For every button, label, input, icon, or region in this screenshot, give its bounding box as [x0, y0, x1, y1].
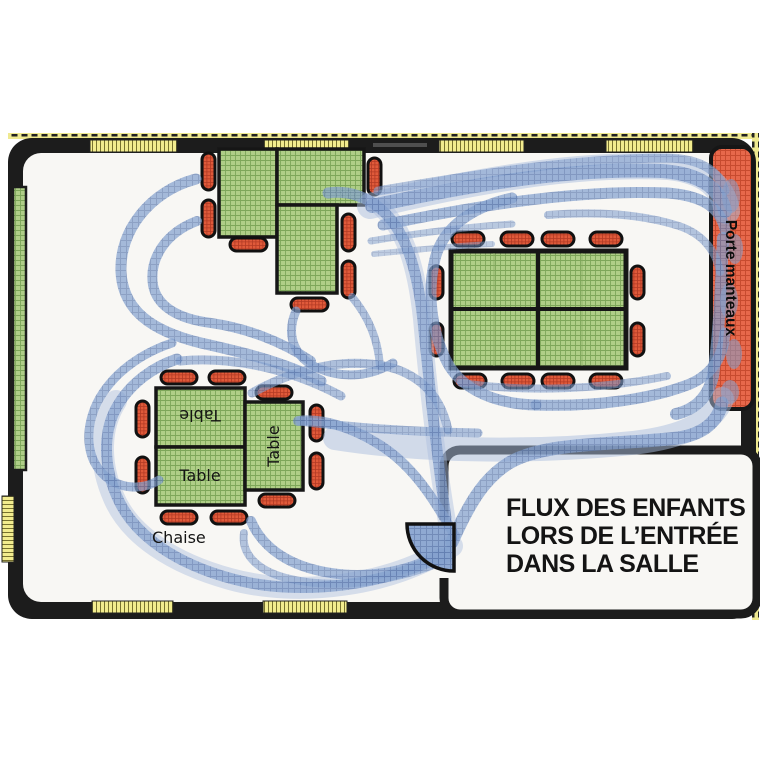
table-big-block: [451, 251, 626, 368]
window-bottom-2: [263, 601, 347, 613]
chair: [501, 232, 533, 246]
coat-rack-label: Porte manteaux: [722, 220, 739, 337]
chair: [202, 200, 215, 237]
flow-blob: [726, 339, 742, 369]
window-top-3: [439, 140, 524, 152]
chair: [342, 214, 355, 251]
floor-plan: Table Table Table Chaise Porte manteaux …: [0, 0, 760, 760]
window-bottom-1: [92, 601, 173, 613]
chair-label: Chaise: [152, 528, 206, 547]
window-top-4: [606, 140, 693, 152]
chair: [136, 401, 149, 437]
wall-marker-line: [373, 143, 427, 147]
title-line-2: LORS DE L’ENTRÉE: [506, 521, 738, 550]
chair: [161, 371, 197, 384]
flow-blob: [721, 380, 739, 404]
window-top-1: [90, 140, 177, 152]
chair: [590, 232, 622, 246]
chair: [631, 323, 644, 356]
chair: [342, 261, 355, 298]
chair: [211, 511, 247, 524]
chair: [230, 238, 267, 251]
title-line-3: DANS LA SALLE: [506, 550, 699, 578]
floor-plan-svg: Table Table Table Chaise Porte manteaux …: [0, 0, 760, 760]
window-left: [2, 496, 14, 562]
chair: [631, 266, 644, 299]
chair: [542, 232, 574, 246]
table-topleft-3: [277, 205, 337, 293]
table-label: Table: [178, 466, 220, 485]
table-label-flipped: Table: [179, 406, 221, 425]
table-label-vertical: Table: [264, 425, 283, 467]
chair: [310, 453, 323, 489]
chair: [161, 511, 197, 524]
table-topleft-1: [219, 149, 277, 237]
chair: [209, 371, 245, 384]
flow-blob: [722, 179, 740, 213]
shelf-strip: [13, 187, 26, 470]
title-line-1: FLUX DES ENFANTS: [506, 494, 745, 522]
chair: [259, 494, 295, 507]
chair: [202, 153, 215, 190]
